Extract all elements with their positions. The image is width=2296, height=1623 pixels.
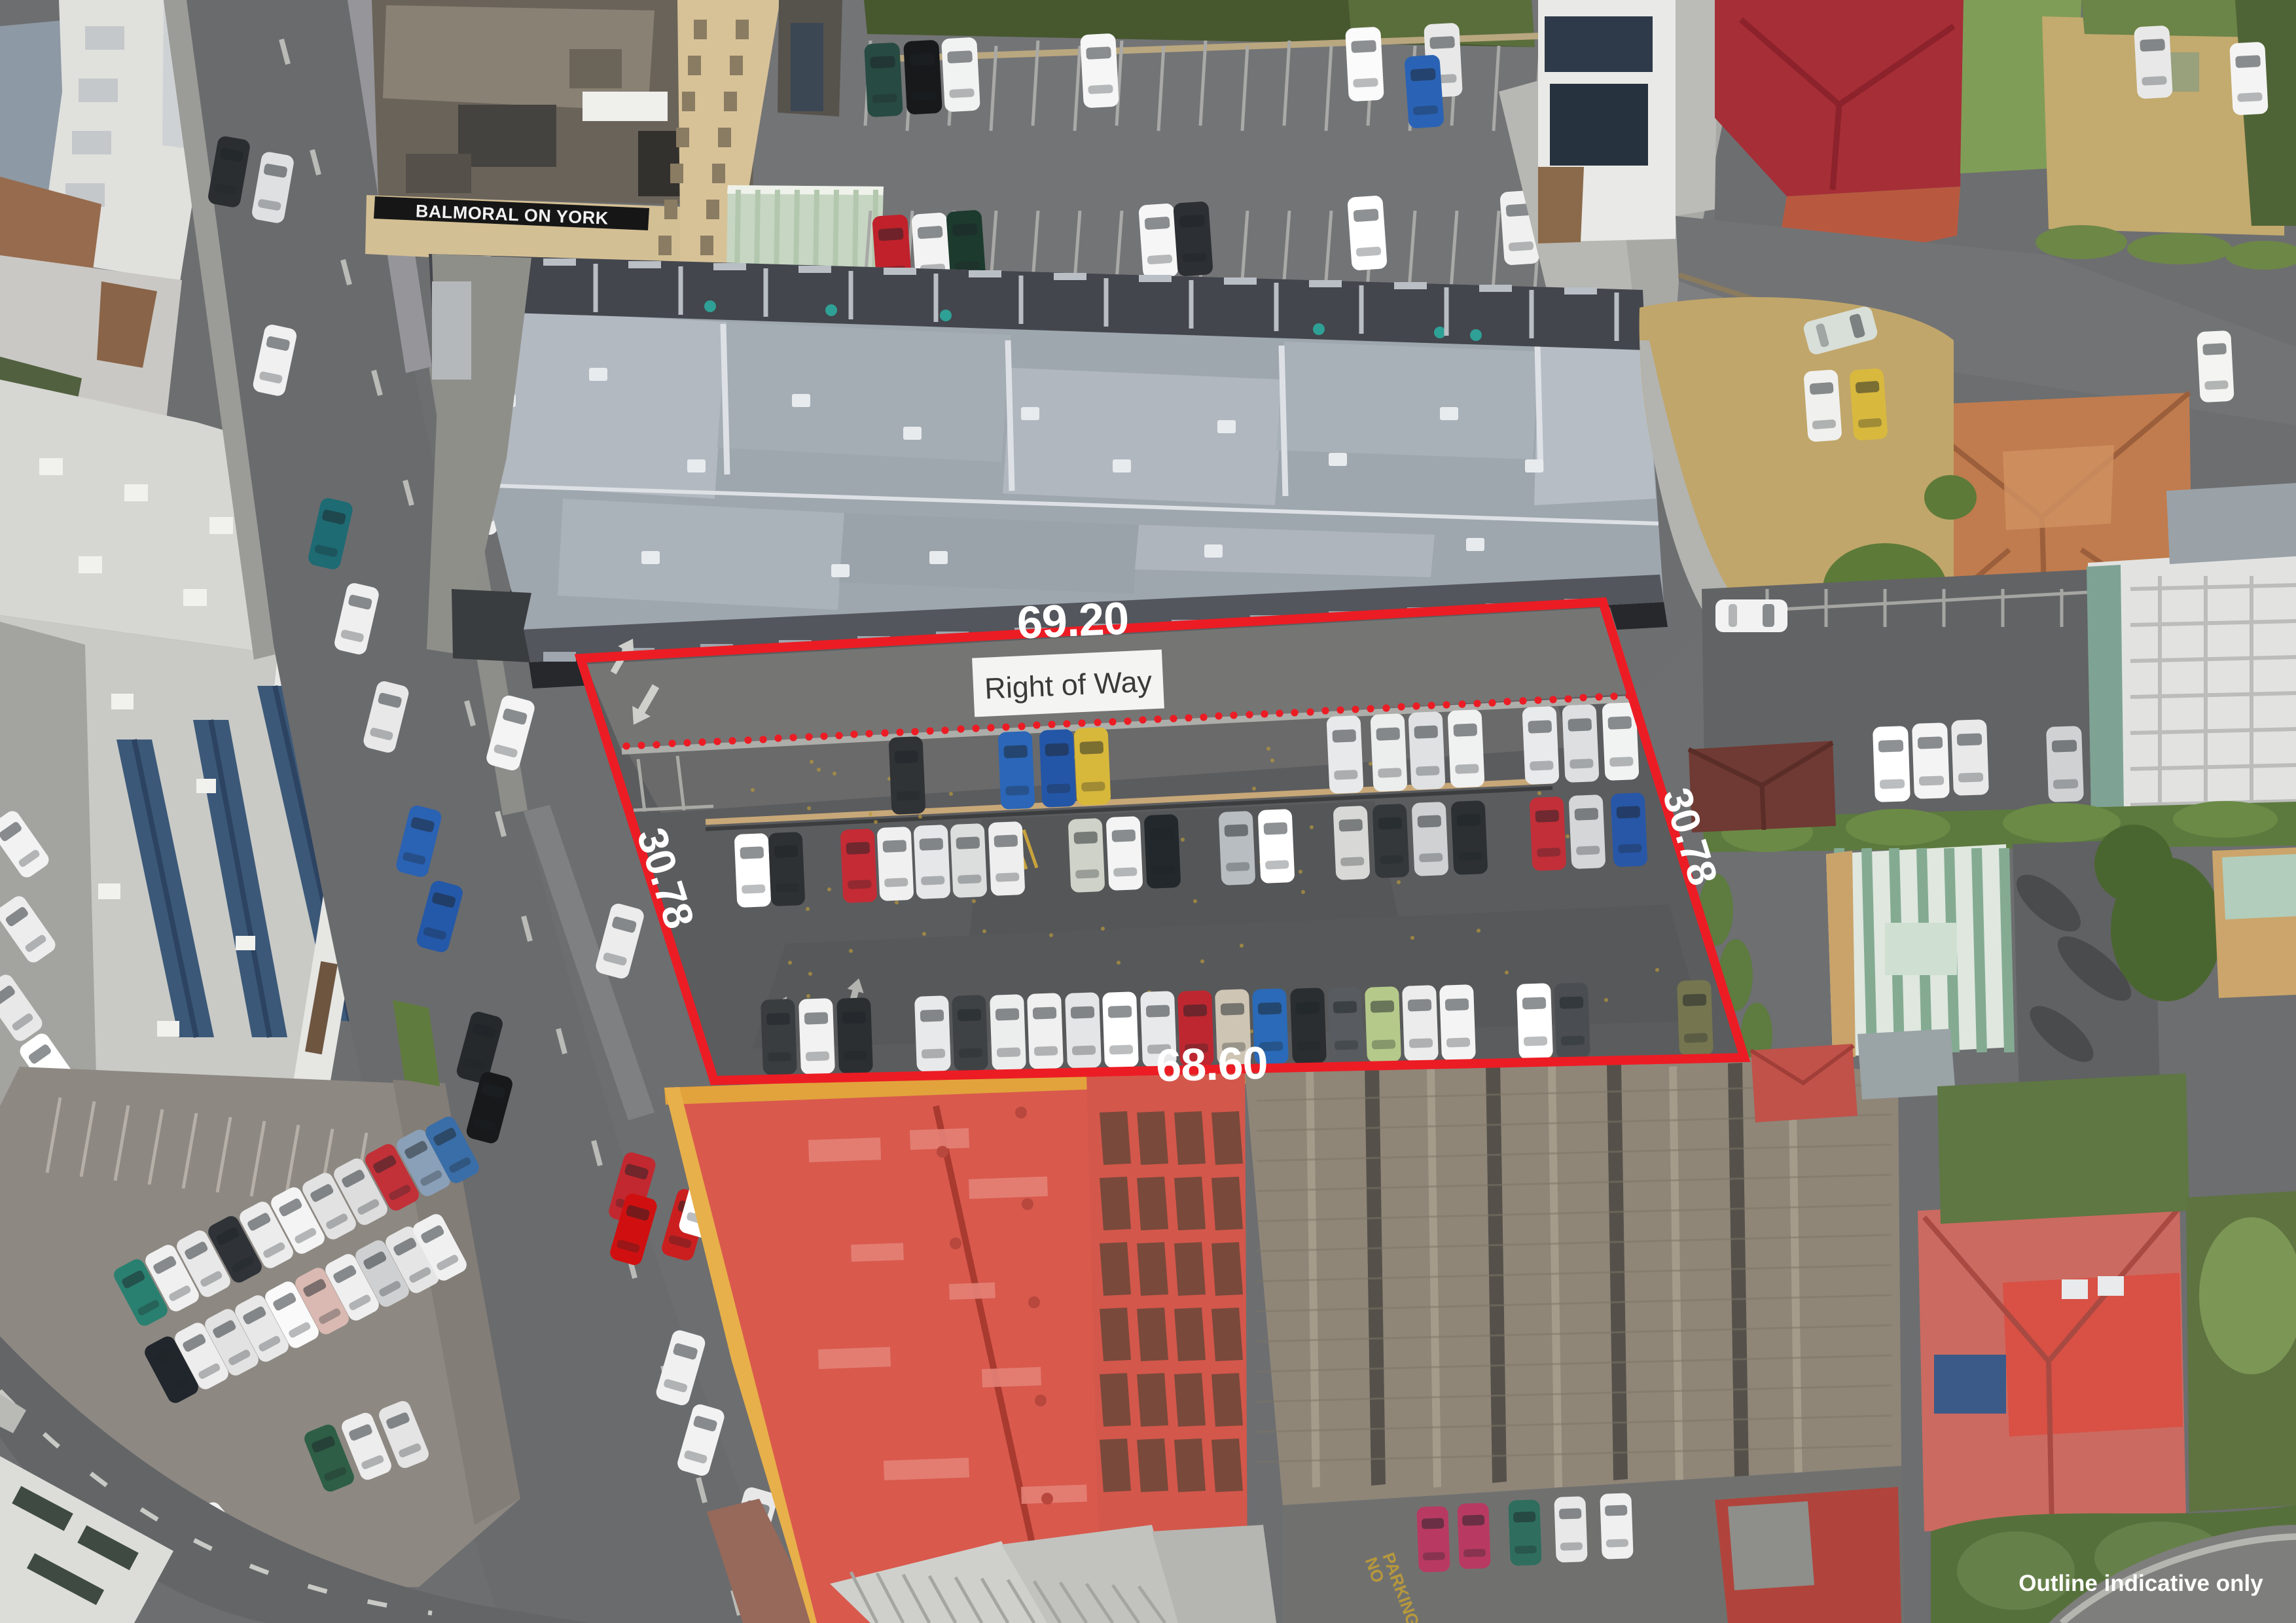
svg-text:69.20: 69.20 bbox=[1016, 592, 1129, 648]
svg-text:Outline indicative only: Outline indicative only bbox=[2018, 1571, 2263, 1596]
svg-text:68.60: 68.60 bbox=[1155, 1037, 1268, 1091]
